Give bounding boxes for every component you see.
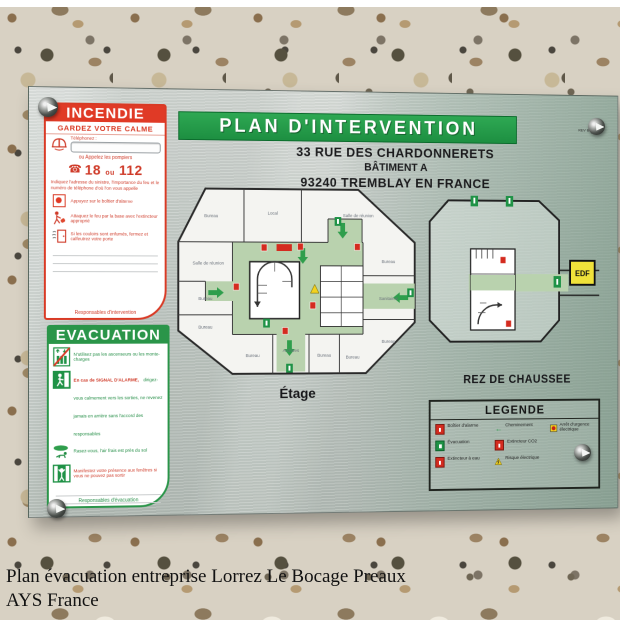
phone-label: Téléphonez : — [71, 136, 161, 142]
legend-item: Évacuation — [435, 440, 495, 451]
evacuation-step-text: dirigez-vous calmement vers les sorties,… — [74, 377, 163, 436]
emergency-stop-icon — [550, 423, 557, 433]
no-elevator-icon — [53, 347, 71, 367]
incendie-header: INCENDIE — [46, 104, 165, 123]
screw-top-right — [588, 118, 605, 135]
svg-text:Bureau: Bureau — [204, 213, 218, 218]
etage-caption: Étage — [232, 385, 362, 402]
svg-text:Salle de réunion: Salle de réunion — [343, 213, 374, 218]
intervention-plan-sign: PLAN D'INTERVENTION REV B 33 RUE DES CHA… — [28, 86, 618, 518]
incendie-step-text: Attaquez le feu par la base avec l'extin… — [71, 213, 161, 224]
evacuation-header: EVACUATION — [49, 327, 168, 344]
legend-item: Extincteur CO2 — [495, 439, 549, 450]
responders-blank-lines — [53, 248, 158, 272]
rdc-core — [471, 249, 515, 330]
etage-floorplan: Bureau Local Salle de réunion Salle de r… — [176, 186, 416, 380]
smoke-door-icon — [50, 228, 68, 244]
water-extinguisher-icon — [435, 457, 444, 468]
svg-text:Archives: Archives — [283, 348, 300, 353]
legend-title: LEGENDE — [431, 401, 599, 421]
screw-bottom-right — [574, 444, 591, 461]
legend-label: Évacuation — [447, 440, 469, 445]
legend-label: Cheminement — [505, 423, 533, 428]
legend-item: ← Cheminement — [495, 423, 549, 434]
incendie-step-text: Appuyez sur le boîtier d'alarme — [71, 198, 161, 204]
call-instructions: Indiquez l'adresse du sinistre, l'import… — [46, 179, 165, 193]
etage-wc-cluster — [320, 266, 363, 327]
rdc-caption: REZ DE CHAUSSEE — [441, 374, 593, 386]
emergency-number-112: 112 — [119, 162, 143, 178]
evacuation-panel: EVACUATION N'utilisez pas les ascenseurs… — [47, 325, 170, 509]
address-building: BÂTIMENT A — [239, 160, 549, 175]
photo-caption-line2: AYS France — [6, 590, 99, 612]
alarm-signal-label: En cas de SIGNAL D'ALARME, — [74, 377, 139, 382]
svg-text:EDF: EDF — [575, 269, 590, 278]
number-separator: ou — [105, 170, 114, 177]
firefighter-helmet-icon — [50, 136, 68, 152]
evacuation-step-text: N'utilisez pas les ascenseurs ou les mon… — [74, 351, 164, 362]
electric-hazard-icon — [495, 456, 502, 466]
alarm-box-icon — [435, 424, 444, 435]
etage-staircase — [250, 262, 300, 319]
svg-text:Bureau: Bureau — [382, 339, 396, 344]
svg-text:Bureau: Bureau — [382, 259, 396, 264]
legend-item: Boîtier d'alarme — [435, 424, 495, 435]
evacuation-step-text: Manifestez votre présence aux fenêtres s… — [74, 467, 164, 479]
svg-text:Bureau: Bureau — [246, 353, 260, 358]
telephone-icon: ☎ — [68, 164, 82, 175]
revision-note: REV B — [549, 127, 589, 132]
legend-label: Arrêt d'urgence électrique — [560, 423, 596, 434]
sign-title-banner: PLAN D'INTERVENTION — [178, 111, 517, 144]
svg-text:Salle de réunion: Salle de réunion — [193, 261, 225, 266]
exit-man-icon — [53, 369, 71, 391]
assembly-icon — [53, 462, 71, 484]
emergency-number-18: 18 — [85, 162, 101, 178]
co2-extinguisher-icon — [495, 440, 504, 451]
legend-box: LEGENDE Boîtier d'alarme Évacuation Exti… — [429, 399, 600, 491]
legend-label: Boîtier d'alarme — [447, 424, 478, 430]
legend-item: Risque électrique — [495, 456, 549, 467]
incendie-step-text: Si les couloirs sont enfumés, fermez et … — [71, 231, 161, 242]
screw-top-left — [38, 97, 58, 117]
svg-text:Bureau: Bureau — [317, 353, 331, 358]
legend-item: Arrêt d'urgence électrique — [550, 423, 596, 434]
route-arrow-icon: ← — [495, 423, 502, 433]
extinguisher-person-icon — [50, 210, 68, 226]
address-block: 33 RUE DES CHARDONNERETS BÂTIMENT A 9324… — [239, 144, 549, 192]
photo-caption-line1: Plan évacuation entreprise Lorrez Le Boc… — [6, 566, 406, 588]
legend-label: Extincteur à eau — [447, 457, 479, 463]
crawl-icon — [53, 443, 71, 461]
screw-bottom-left — [47, 499, 66, 518]
rdc-floorplan: EDF — [422, 194, 606, 357]
incendie-panel: INCENDIE GARDEZ VOTRE CALME Téléphonez :… — [44, 102, 167, 320]
phone-number-field — [71, 142, 161, 154]
legend-item: Extincteur à eau — [435, 456, 495, 467]
evacuation-icon — [435, 440, 444, 451]
svg-text:Bureau: Bureau — [346, 355, 360, 360]
svg-text:Local: Local — [268, 211, 278, 216]
evacuation-footer: Responsables d'évacuation — [49, 497, 168, 505]
edf-box: EDF — [570, 261, 595, 285]
alarm-label-marker — [277, 244, 292, 251]
svg-text:Bureau: Bureau — [198, 325, 212, 330]
incendie-footer: Responsables d'intervention — [46, 310, 165, 316]
alarm-button-icon — [50, 192, 68, 208]
evacuation-step-text: Rasez-vous, l'air frais est près du sol — [74, 448, 164, 454]
svg-text:Bureau: Bureau — [198, 296, 212, 301]
address-street: 33 RUE DES CHARDONNERETS — [239, 144, 549, 162]
top-white-strip — [0, 0, 620, 7]
legend-label: Risque électrique — [505, 456, 539, 462]
svg-text:Sanitaires: Sanitaires — [379, 296, 398, 301]
legend-label: Extincteur CO2 — [507, 439, 537, 445]
